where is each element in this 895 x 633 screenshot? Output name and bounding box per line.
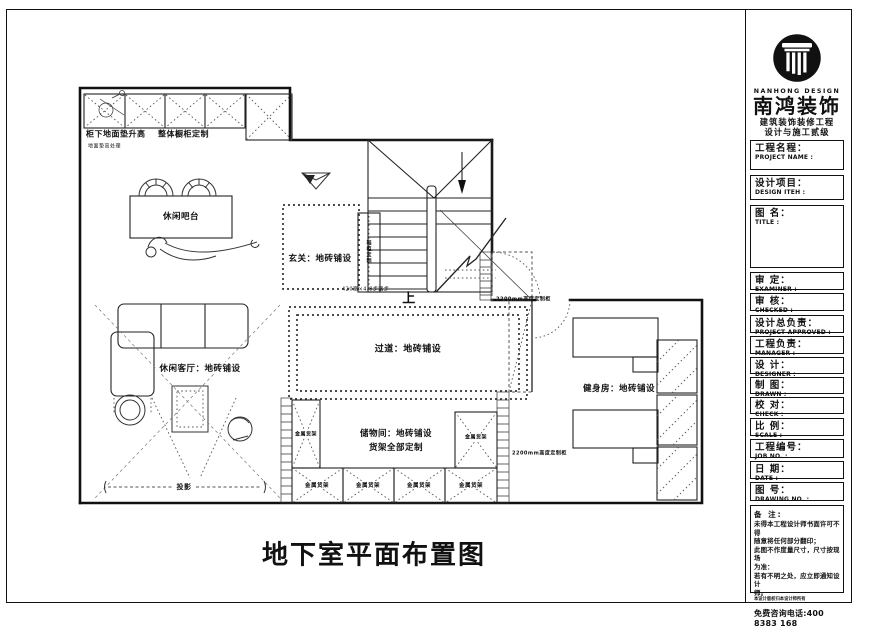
- notes-line: 此图不作度量尺寸，尺寸按现场: [754, 546, 840, 563]
- bar-chair-icon: [139, 179, 216, 196]
- brand-block: NANHONG DESIGN 南鸿装饰 建筑装饰装修工程 设计与施工贰级 *NO…: [750, 33, 844, 145]
- brand-cert-line1: 建筑装饰装修工程: [750, 117, 844, 127]
- mirror-panels: [657, 340, 697, 500]
- stair-up-label: 上: [402, 288, 416, 307]
- field-check: 校 对： CHECK :: [750, 397, 844, 414]
- field-date: 日 期： DATE :: [750, 461, 844, 479]
- shelf-label-b4: 金属货架: [459, 481, 483, 489]
- shoe-cabinet-label: 鞋柜定制: [366, 240, 373, 264]
- title-block: NANHONG DESIGN 南鸿装饰 建筑装饰装修工程 设计与施工贰级 *NO…: [745, 9, 855, 603]
- brand-cert-line2: 设计与施工贰级: [750, 127, 844, 137]
- field-drawn: 制 图： DRAWN :: [750, 377, 844, 394]
- field-scale: 比 例： SCALE :: [750, 418, 844, 436]
- shelf-label-b3: 金属货架: [407, 481, 431, 489]
- page-title: 地下室平面布置图: [262, 535, 486, 572]
- coffee-table-icon: [172, 386, 208, 432]
- room-label-living: 休闲客厅：地砖铺设: [157, 362, 242, 374]
- room-label-gym: 健身房：地砖铺设: [583, 382, 655, 394]
- notes-line: 为准：: [754, 563, 840, 572]
- cabinet-note-1: 柜下地面垫升高: [86, 129, 146, 140]
- field-drawing-no: 图 号： DRAWING NO. :: [750, 482, 844, 501]
- field-designer: 设 计： DESIGNER :: [750, 357, 844, 374]
- entry-area: [283, 173, 380, 292]
- floor-note: 地面垫高处理: [88, 143, 121, 150]
- field-project-approved: 设计总负责： PROJECT APPROVED :: [750, 315, 844, 333]
- room-label-entry: 玄关：地砖铺设: [288, 252, 351, 264]
- notes-line: 若有不明之处，应立即通知设计: [754, 572, 840, 589]
- projection-label: 投影: [174, 482, 195, 492]
- shelf-label-b2: 金属货架: [356, 481, 380, 489]
- sofa-icon: [111, 304, 248, 413]
- field-checked: 审 核： CHECKED :: [750, 293, 844, 311]
- field-examiner: 审 定： EXAMINER :: [750, 272, 844, 290]
- shelf-label-left: 金属货架: [295, 431, 317, 438]
- cabinet-2200-label-2: 2200mm高度定制柜: [512, 450, 567, 457]
- gym-room: [532, 300, 697, 500]
- field-drawing-title: 图 名： TITLE :: [750, 205, 844, 268]
- stairs: [368, 140, 530, 298]
- nanhong-logo-icon: [772, 33, 822, 83]
- notes-line: 随意将任何部分翻印；: [754, 537, 840, 546]
- room-label-storage-2: 货架全部定制: [369, 441, 423, 453]
- hotline-phone: 免费咨询电话:400 8383 168: [754, 608, 840, 628]
- field-job-no: 工程编号： JOB NO. :: [750, 439, 844, 458]
- notes-copyright: 本设计版权归本设计师所有: [754, 597, 840, 603]
- brand-name-zh: 南鸿装饰: [750, 95, 844, 117]
- storage-room: [281, 300, 532, 503]
- room-label-storage-1: 储物间：地砖铺设: [360, 427, 432, 439]
- shelf-label-right: 金属货架: [465, 434, 487, 441]
- stair-side-cabinet: [480, 252, 540, 300]
- notes-title: 备 注:: [754, 509, 840, 520]
- armchair-icon: [228, 417, 252, 441]
- stair-note: 420宽×4-8步踏步: [342, 286, 389, 293]
- living-room: [95, 304, 280, 498]
- notes-block: 备 注: 未得本工程设计师书面许可不得 随意将任何部分翻印； 此图不作度量尺寸，…: [750, 505, 844, 593]
- cabinet-2200-label-1: 2200mm高度定制柜: [496, 296, 551, 303]
- side-table-icon: [115, 395, 145, 425]
- room-label-corridor: 过道：地砖铺设: [375, 342, 442, 355]
- room-label-bar: 休闲吧台: [163, 210, 199, 222]
- floor-drain-icon: [302, 173, 330, 189]
- person-figure-icon: [146, 237, 259, 260]
- cabinet-note-2: 整体橱柜定制: [158, 129, 209, 140]
- cad-sheet: { "sheet": { "main_title": "地下室平面布置图" },…: [0, 0, 895, 633]
- field-manager: 工程负责： MANAGER :: [750, 336, 844, 354]
- field-project-name: 工程名程： PROJECT NAME :: [750, 140, 844, 170]
- shelf-label-b1: 金属货架: [305, 481, 329, 489]
- field-design-item: 设计项目： DESIGN ITEH :: [750, 175, 844, 200]
- notes-line: 未得本工程设计师书面许可不得: [754, 520, 840, 537]
- down-arrow-icon: [458, 180, 466, 194]
